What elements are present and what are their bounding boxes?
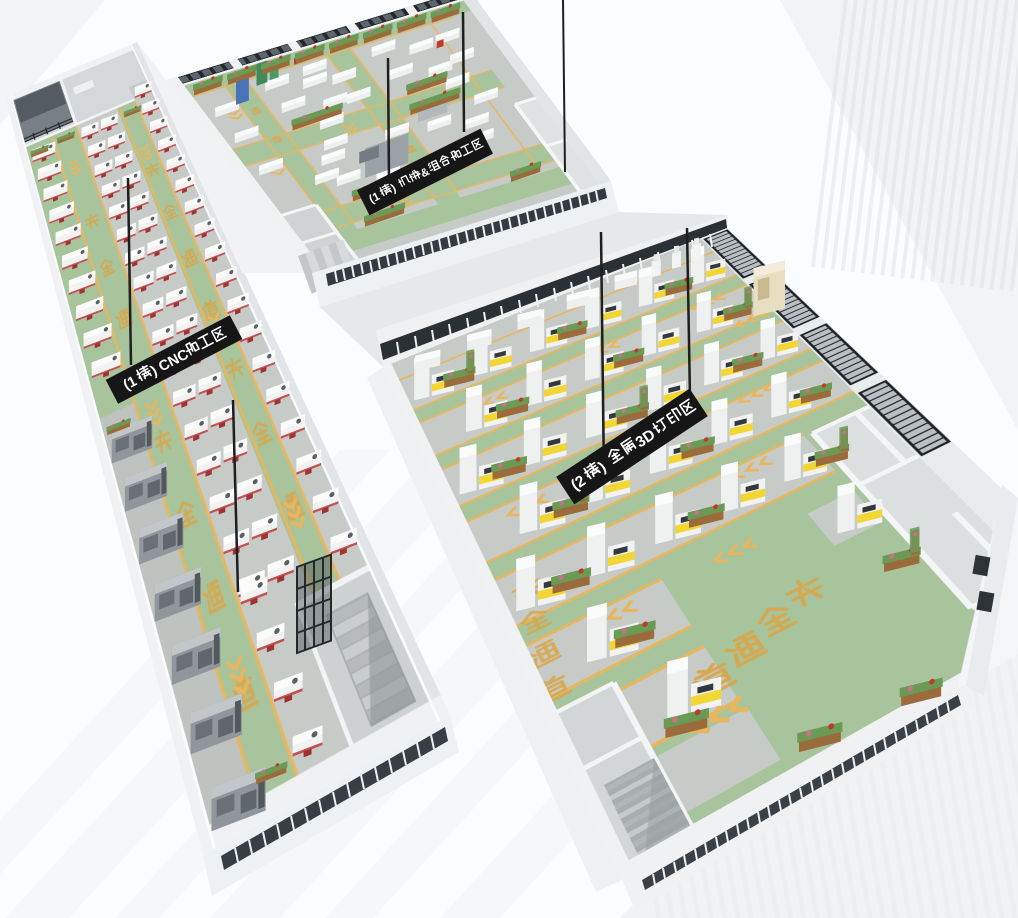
svg-text:(1: (1	[121, 374, 140, 394]
svg-text:(1: (1	[367, 190, 382, 206]
svg-text:): )	[389, 182, 398, 195]
svg-text:3D: 3D	[633, 426, 659, 451]
svg-text:(2: (2	[568, 472, 589, 494]
